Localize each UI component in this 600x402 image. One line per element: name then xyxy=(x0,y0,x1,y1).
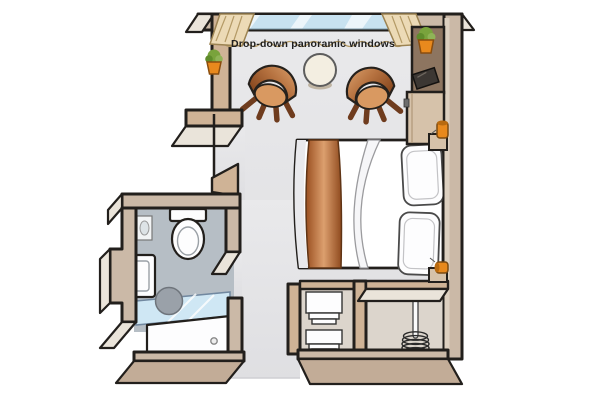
bathroom-top-wall xyxy=(122,194,240,208)
bathroom-left-wall xyxy=(110,208,136,322)
bathroom-bottom-slab xyxy=(116,361,244,383)
round-washbasin xyxy=(156,288,183,315)
double-bed xyxy=(295,140,445,275)
cabin-floor-plan: Drop-down panoramic windows xyxy=(0,0,600,402)
shower-drain xyxy=(211,338,217,344)
floor-plan-drawing: Drop-down panoramic windows xyxy=(0,0,600,402)
cabinet-handle xyxy=(404,99,409,107)
wall-mirror xyxy=(137,216,152,240)
closet-left-wall xyxy=(288,284,300,354)
bathroom-bottomleft-bevel xyxy=(100,322,136,348)
side-table xyxy=(304,54,336,86)
toilet xyxy=(170,209,206,259)
wardrobe-shelves xyxy=(306,292,342,353)
bathroom-bottom-wall xyxy=(134,352,244,361)
bathroom-right-wall xyxy=(226,208,240,252)
bathroom-topleft-bevel xyxy=(108,194,122,224)
closet-right-top-slab xyxy=(358,289,448,301)
bathroom-left-bevel xyxy=(100,249,110,313)
closet-left-top-wall xyxy=(300,281,358,289)
shower-right-wall xyxy=(228,298,242,354)
bed-runner xyxy=(306,140,342,268)
closet-bottom-slab xyxy=(298,359,462,384)
closet-bottom-wall xyxy=(298,350,448,359)
window-label: Drop-down panoramic windows xyxy=(231,38,395,50)
